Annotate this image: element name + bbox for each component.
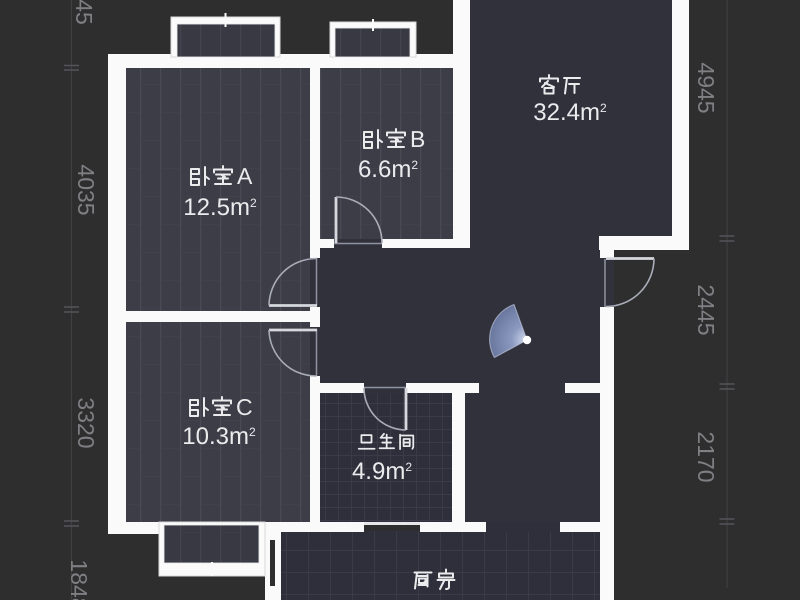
svg-text:4.9m2: 4.9m2 <box>352 458 412 485</box>
svg-text:C: C <box>236 394 253 420</box>
svg-text:4035: 4035 <box>73 164 99 215</box>
svg-text:6.6m2: 6.6m2 <box>358 156 418 183</box>
svg-text:1848: 1848 <box>66 559 92 600</box>
svg-text:4945: 4945 <box>693 62 719 113</box>
svg-text:2445: 2445 <box>693 284 719 335</box>
svg-text:32.4m2: 32.4m2 <box>533 99 607 126</box>
svg-text:45: 45 <box>71 0 97 25</box>
svg-text:12.5m2: 12.5m2 <box>183 194 257 221</box>
svg-text:A: A <box>237 163 253 189</box>
svg-text:B: B <box>410 126 425 152</box>
svg-text:2170: 2170 <box>693 431 719 482</box>
svg-text:3320: 3320 <box>73 397 99 448</box>
svg-text:10.3m2: 10.3m2 <box>182 423 256 450</box>
